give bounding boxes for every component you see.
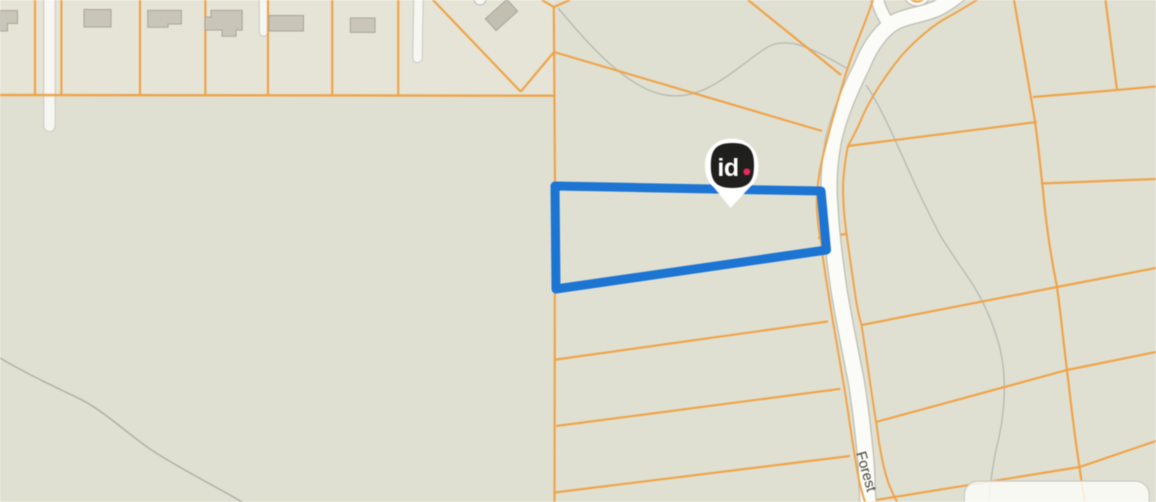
svg-text:id: id bbox=[717, 154, 738, 182]
